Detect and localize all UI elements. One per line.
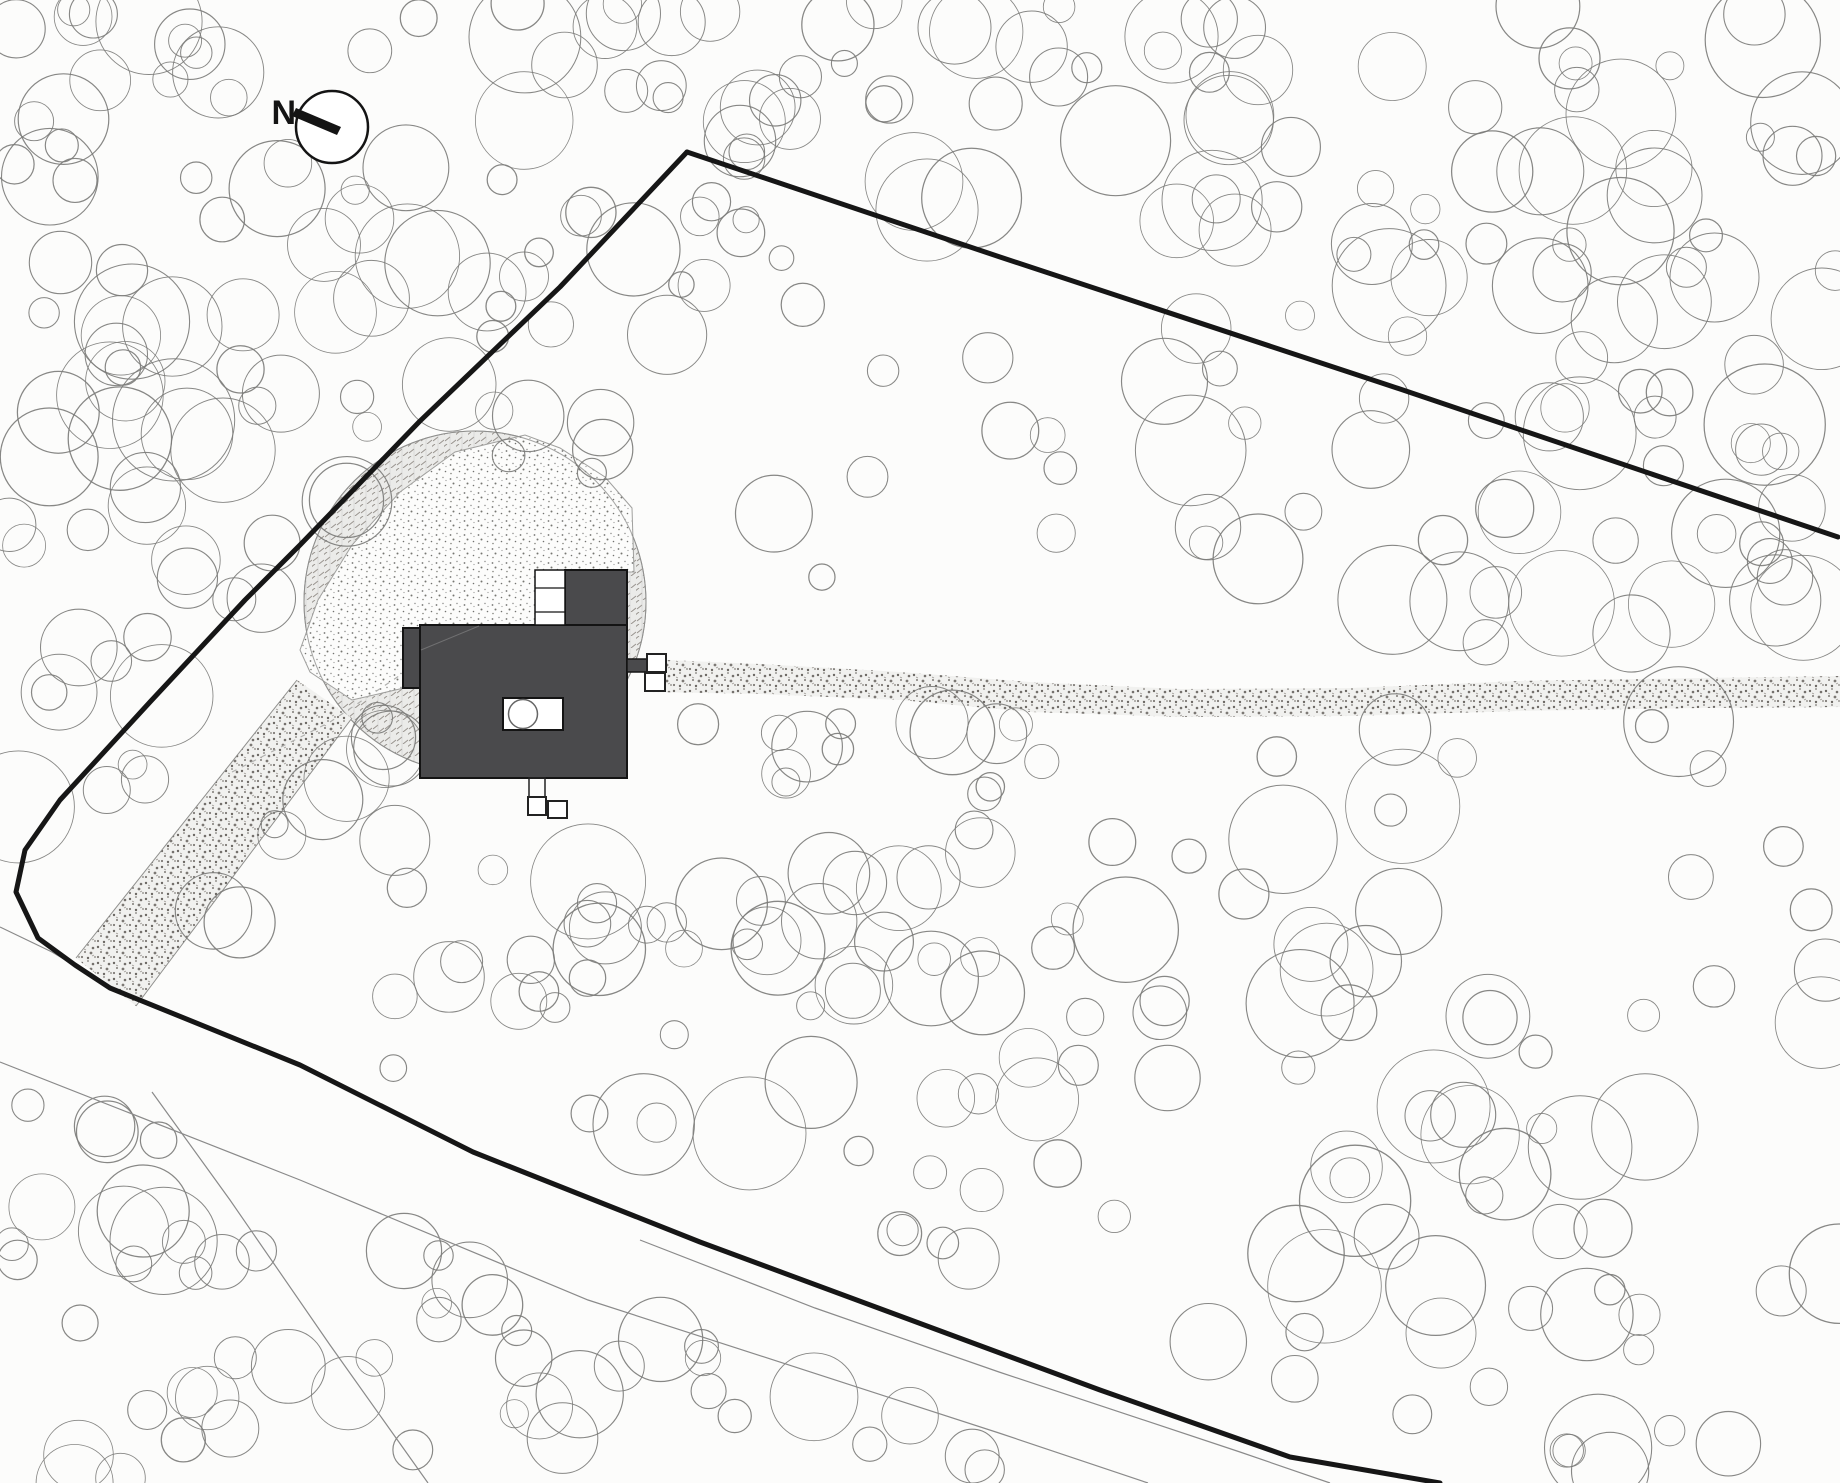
tree-canopy [996,1058,1079,1141]
tree-canopy [478,855,508,885]
road-edge-line [640,1240,1330,1483]
tree-canopy [251,1330,325,1404]
tree-canopy [21,654,97,730]
utility-box [548,801,567,818]
tree-canopy [1135,395,1246,506]
tree-canopy [941,951,1025,1035]
tree-canopy [1346,749,1460,863]
tree-canopy [0,751,74,863]
utility-box [528,797,546,815]
tree-canopy [487,165,517,195]
tree-canopy [567,389,633,455]
tree-canopy [211,79,248,116]
tree-canopy [77,1101,139,1163]
utility-box [647,654,666,672]
tree-canopy [1248,1205,1344,1301]
tree-canopy [1740,522,1784,566]
tree-canopy [1775,977,1840,1069]
north-arrow: N [271,91,368,163]
tree-canopy [1747,539,1792,584]
tree-canopy [171,398,275,502]
tree-canopy [680,0,739,41]
tree-canopy [637,1103,676,1142]
tree-canopy [1043,0,1075,23]
tree-canopy [897,846,960,909]
tree-canopy [1354,1204,1419,1269]
tree-canopy [1280,923,1373,1016]
tree-canopy [782,884,857,959]
tree-canopy [772,768,800,796]
tree-canopy [217,346,264,393]
tree-canopy [847,456,888,497]
tree-canopy [1618,255,1712,349]
tree-canopy [441,941,483,983]
tree-canopy [1790,889,1832,931]
north-label: N [271,94,296,132]
tree-canopy [402,338,496,432]
tree-canopy [469,0,581,93]
tree-canopy [422,1288,452,1318]
tree-canopy [969,77,1022,130]
tree-canopy [1406,1298,1476,1368]
tree-canopy [1358,33,1426,101]
tree-canopy [1125,0,1218,83]
tree-canopy [628,295,707,374]
tree-canopy [946,818,1016,888]
tree-canopy [1533,244,1591,302]
tree-canopy [573,0,637,59]
tree-canopy [202,1400,259,1457]
tree-canopy [141,388,233,480]
tree-canopy [1466,1177,1503,1214]
tree-canopy [153,62,188,97]
tree-canopy [1388,317,1426,355]
tree-canopy [999,1029,1058,1088]
tree-canopy [717,209,765,257]
tree-canopy [1044,452,1077,485]
tree-canopy [527,1403,598,1474]
tree-canopy [1199,194,1271,266]
tree-canopy [121,756,168,803]
tree-canopy [693,1077,806,1190]
tree-canopy [963,333,1013,383]
tree-canopy [685,1340,720,1375]
tree-canopy [236,1231,276,1271]
tree-canopy [1634,396,1676,438]
tree-canopy [9,1174,75,1240]
tree-canopy [1282,1051,1315,1084]
tree-canopy [967,704,1027,764]
tree-canopy [1162,150,1262,250]
tree-canopy [81,296,160,375]
tree-canopy [393,1430,433,1470]
tree-canopy [853,1427,887,1461]
tree-canopy [1051,903,1083,935]
tree-canopy [96,245,147,296]
tree-canopy [553,903,645,995]
tree-canopy [691,1374,726,1409]
tree-canopy [1646,369,1693,416]
tree-canopy [882,1387,939,1444]
tree-canopy [0,0,45,58]
tree-canopy [1533,1204,1587,1258]
tree-canopy [605,69,648,112]
tree-canopy [1067,998,1104,1035]
tree-canopy [244,515,300,571]
tree-canopy [996,11,1067,82]
tree-canopy [593,1074,694,1175]
tree-canopy [733,207,759,233]
tree-canopy [736,475,813,552]
tree-canopy [113,359,235,481]
tree-canopy [283,760,363,840]
tree-canopy [1519,1035,1552,1068]
clearing-layer [76,431,1840,1006]
tree-canopy [761,715,796,750]
tree-canopy [638,0,705,56]
tree-canopy [1286,301,1315,330]
utility-box [645,673,665,691]
tree-canopy [1332,229,1446,343]
tree-canopy [917,1070,975,1128]
tree-canopy [586,0,660,51]
tree-canopy [1553,1434,1585,1466]
tree-canopy [167,1368,217,1418]
tree-canopy [1431,1082,1496,1147]
tree-canopy [1736,424,1787,475]
tree-canopy [3,524,46,567]
tree-canopy [288,208,361,281]
tree-canopy [1213,514,1303,604]
tree-canopy [477,321,509,353]
tree-canopy [348,29,392,73]
tree-canopy [1815,251,1840,291]
tree-canopy [1393,1395,1432,1434]
tree-canopy [704,105,775,176]
tree-canopy [1252,182,1302,232]
tree-canopy [29,298,59,328]
tree-canopy [1061,86,1171,196]
tree-canopy [1669,855,1714,900]
tree-canopy [1459,1128,1551,1220]
tree-canopy [1058,1045,1098,1085]
tree-canopy [1539,28,1600,89]
tree-canopy [1170,1304,1246,1380]
tree-canopy [1229,785,1337,893]
tree-canopy [67,509,108,550]
tree-canopy [1189,526,1222,559]
tree-canopy [1789,1224,1840,1323]
tree-canopy [475,72,573,170]
tree-canopy [110,1187,217,1294]
tree-canopy [2,128,99,225]
tree-canopy [295,271,377,353]
tree-canopy [0,1228,28,1261]
tree-canopy [1449,81,1502,134]
tree-canopy [44,1420,114,1483]
tree-canopy [532,32,598,98]
tree-canopy [958,1074,998,1114]
tree-canopy [200,197,245,242]
tree-canopy [772,711,843,782]
tree-canopy [86,342,165,421]
tree-canopy [1574,1199,1632,1257]
tree-canopy [781,283,824,326]
tree-canopy [462,1275,523,1336]
tree-canopy [161,1418,205,1462]
tree-canopy [844,1136,873,1165]
tree-canopy [561,195,602,236]
tree-canopy [965,1450,1004,1483]
tree-canopy [41,609,118,686]
building-annex [565,570,627,625]
tree-canopy [1172,839,1206,873]
tree-canopy [619,1297,703,1381]
tree-canopy [83,767,130,814]
tree-canopy [887,1215,918,1246]
tree-canopy [1730,555,1821,646]
tree-canopy [1528,1096,1632,1200]
tree-canopy [647,903,686,942]
tree-canopy [157,548,217,608]
tree-canopy [1607,148,1702,243]
road-edge-line [152,1092,428,1483]
tree-canopy [500,252,549,301]
tree-canopy [1133,986,1187,1040]
tree-canopy [1229,407,1261,439]
tree-canopy [1572,1432,1649,1483]
tree-canopy [703,81,785,163]
tree-canopy [105,350,140,385]
tree-canopy [1756,1266,1806,1316]
tree-canopy [417,1297,461,1341]
tree-canopy [53,158,97,202]
tree-canopy [866,76,913,123]
tree-canopy [97,1165,189,1257]
tree-canopy [1628,561,1714,647]
tree-canopy [1089,819,1136,866]
boundary-line [687,152,1838,537]
tree-canopy [1357,170,1393,206]
tree-canopy [1497,128,1584,215]
tree-canopy [564,900,611,947]
tree-canopy [1452,131,1533,212]
tree-canopy [653,83,683,113]
property-boundary [16,152,1838,1483]
tree-canopy [733,907,801,975]
tree-canopy [380,1055,407,1082]
tree-canopy [414,942,485,1013]
tree-canopy [1330,1158,1370,1198]
tree-canopy [1331,204,1412,285]
tree-canopy [1794,939,1840,1001]
tree-canopy [1257,737,1296,776]
tree-canopy [387,868,426,907]
utility-connector [529,778,545,798]
tree-canopy [1261,117,1320,176]
tree-canopy [1274,907,1348,981]
tree-canopy [491,0,544,30]
tree-canopy [32,675,67,710]
tree-canopy [1696,1412,1760,1476]
tree-canopy [1466,223,1507,264]
tree-canopy [1311,1131,1383,1203]
tree-canopy [1186,72,1274,160]
tree-canopy [1476,479,1534,537]
tree-canopy [385,210,490,315]
tree-canopy [1593,518,1638,563]
tree-canopy [12,1089,44,1121]
tree-canopy [1463,620,1508,665]
tree-canopy [1697,515,1736,554]
tree-canopy [1670,233,1759,322]
tree-canopy [68,387,171,490]
tree-canopy [325,185,394,254]
tree-canopy [1496,0,1580,48]
tree-canopy [448,253,526,331]
tree-canopy [1098,1200,1130,1232]
tree-canopy [45,129,78,162]
tree-canopy [797,992,825,1020]
tree-canopy [569,892,641,964]
tree-canopy [78,1186,168,1276]
tree-canopy [140,1122,176,1158]
tree-canopy [0,145,34,184]
tree-canopy [341,380,374,413]
tree-canopy [587,203,680,296]
tree-canopy [1571,277,1657,363]
site-plan: N [0,0,1840,1483]
tree-canopy [491,973,547,1029]
tree-canopy [1545,1394,1652,1483]
tree-canopy [1332,411,1410,489]
tree-canopy [1550,1434,1583,1467]
tree-canopy [1463,991,1517,1045]
tree-canopy [1797,136,1836,175]
tree-canopy [360,805,430,875]
tree-canopy [1246,950,1354,1058]
tree-canopy [1411,194,1440,223]
tree-canopy [660,1021,688,1049]
tree-canopy [867,355,898,386]
tree-canopy [29,231,91,293]
tree-canopy [123,277,222,376]
tree-canopy [128,1391,167,1430]
tree-canopy [1764,827,1804,867]
tree-canopy [74,1096,134,1156]
tree-canopy [1073,877,1178,982]
tree-canopy [353,412,382,441]
building-extension [403,628,420,688]
tree-canopy [1559,47,1592,80]
tree-canopy [500,1400,528,1428]
tree-canopy [1705,0,1820,98]
tree-canopy [855,912,914,971]
tree-canopy [1181,0,1237,47]
tree-canopy [227,564,295,632]
tree-canopy [1509,551,1615,657]
tree-canopy [0,1240,37,1279]
tree-canopy [918,943,951,976]
tree-canopy [762,749,811,798]
tree-canopy [400,0,437,37]
tree-canopy [1470,567,1522,619]
tree-canopy [18,74,109,165]
tree-canopy [1356,868,1442,954]
tree-canopy [108,467,185,544]
site-plan-canvas: N [0,0,1840,1483]
tree-canopy [955,811,993,849]
tree-canopy [356,1340,393,1377]
tree-canopy [1555,67,1599,111]
tree-canopy [982,402,1039,459]
tree-canopy [312,1357,385,1430]
tree-canopy [914,1156,947,1189]
tree-canopy [58,0,90,26]
tree-canopy [152,526,221,595]
tree-canopy [666,930,703,967]
tree-canopy [769,246,794,271]
tree-canopy [242,355,319,432]
tree-canopy [1527,1113,1557,1143]
tree-canopy [1690,219,1723,252]
tree-canopy [0,408,98,506]
tree-canopy [36,1445,113,1483]
tree-canopy [366,1213,441,1288]
tree-canopy [676,858,768,950]
tree-canopy [1285,493,1322,530]
tree-canopy [878,1212,922,1256]
tree-canopy [1567,178,1674,285]
tree-canopy [204,887,275,958]
tree-canopy [486,291,516,321]
tree-canopy [1666,247,1706,287]
tree-canopy [1223,35,1292,104]
tree-canopy [214,1337,256,1379]
tree-canopy [961,938,1000,977]
tree-canopy [1636,710,1669,743]
tree-canopy [1030,418,1065,453]
tree-canopy [669,272,694,297]
tree-canopy [770,1353,858,1441]
utility-connector [627,659,647,672]
tree-canopy [62,1305,98,1341]
tree-canopy [1386,1236,1486,1336]
tree-canopy [1556,332,1608,384]
tree-canopy [1763,126,1822,185]
tree-canopy [1204,0,1266,58]
tree-canopy [729,134,765,170]
tree-canopy [1144,32,1181,69]
tree-canopy [809,564,835,590]
tree-canopy [1624,1335,1654,1365]
tree-canopy [181,162,212,193]
tree-canopy [1492,238,1588,334]
tree-canopy [1438,739,1477,778]
entry-stairs [535,570,565,625]
tree-canopy [1192,175,1240,223]
tree-canopy [1175,494,1240,559]
tree-canopy [1032,927,1075,970]
tree-canopy [1763,433,1799,469]
tree-canopy [363,125,449,211]
tree-canopy [1300,1145,1411,1256]
tree-canopy [1693,966,1734,1007]
tree-canopy [1272,1356,1319,1403]
tree-canopy [373,974,418,1019]
tree-canopy [825,963,880,1018]
tree-canopy [1037,514,1075,552]
